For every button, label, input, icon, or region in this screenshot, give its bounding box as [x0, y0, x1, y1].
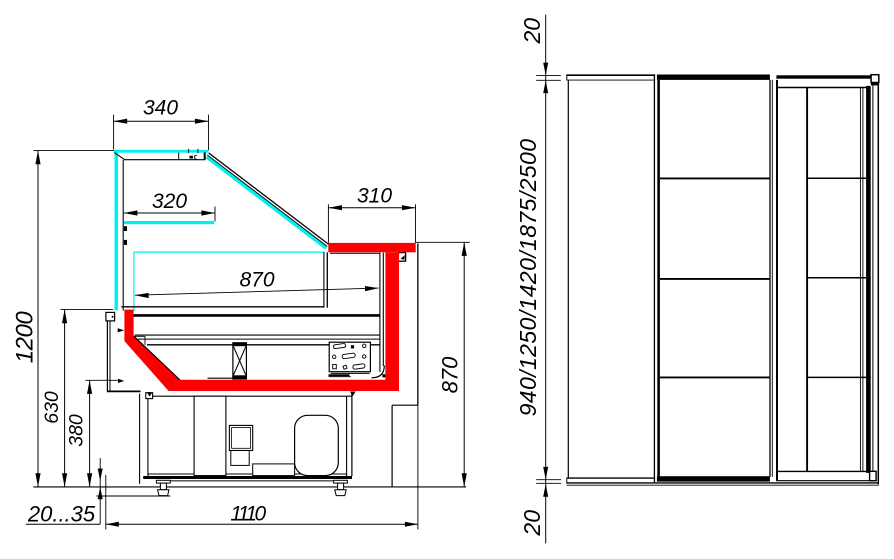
svg-text:1110: 1110	[230, 503, 266, 526]
svg-text:20...35: 20...35	[27, 501, 96, 526]
svg-text:380: 380	[66, 414, 88, 447]
svg-text:630: 630	[41, 391, 63, 424]
svg-text:20: 20	[519, 18, 545, 45]
svg-text:940/1250/1420/1875/2500: 940/1250/1420/1875/2500	[515, 139, 541, 417]
svg-text:870: 870	[438, 356, 463, 393]
svg-text:320: 320	[152, 190, 187, 213]
svg-text:340: 340	[143, 97, 178, 120]
svg-text:1200: 1200	[12, 311, 39, 364]
svg-text:870: 870	[239, 268, 274, 291]
svg-text:310: 310	[357, 185, 392, 208]
svg-text:20: 20	[519, 510, 545, 537]
